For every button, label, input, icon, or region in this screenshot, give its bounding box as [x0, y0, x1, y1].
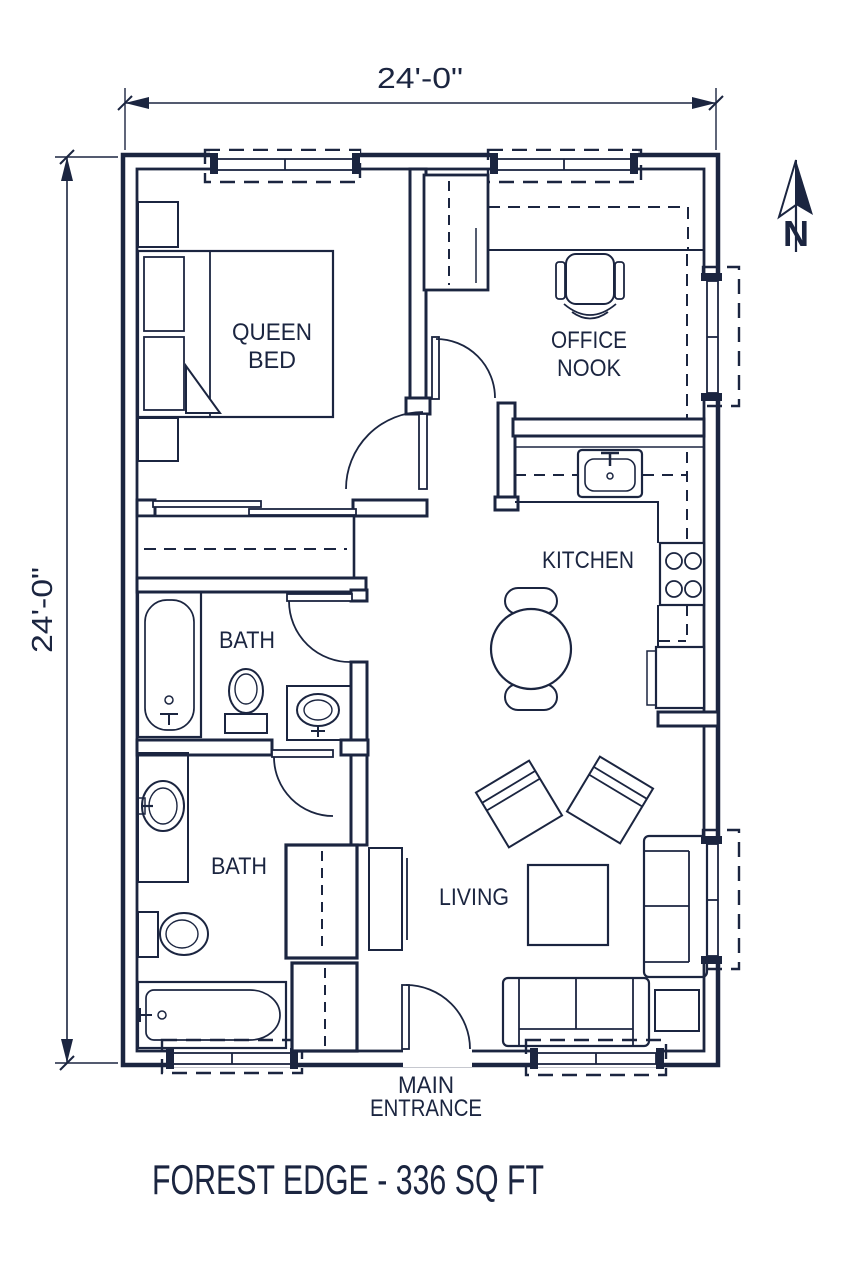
bedroom-door [346, 412, 427, 489]
media-console [369, 848, 407, 950]
loveseat-right [644, 836, 707, 977]
bathtub-middle [138, 592, 201, 737]
bath-lower-door [272, 750, 333, 816]
armchair-right [567, 757, 653, 844]
entry-closet-upper [286, 845, 357, 958]
kitchen-sink [578, 450, 642, 497]
dining-set [491, 588, 571, 710]
end-table [655, 990, 699, 1031]
dimension-top-label: 24'-0" [377, 63, 463, 95]
bedroom-closet-sliding-doors [153, 501, 356, 515]
bath-middle-door [287, 594, 352, 662]
room-label-living: LIVING [439, 884, 509, 911]
room-label-kitchen: KITCHEN [542, 547, 634, 574]
office-door [432, 337, 495, 399]
toilet-middle [225, 669, 267, 733]
room-label-entrance-line2: ENTRANCE [370, 1095, 482, 1122]
room-label-office-line2: NOOK [557, 355, 621, 382]
room-label-bedroom-line2: BED [248, 347, 296, 374]
main-entrance-door [402, 985, 470, 1049]
toilet-lower [138, 912, 208, 957]
room-label-bath-middle: BATH [219, 627, 275, 654]
plan-title: FOREST EDGE - 336 SQ FT [152, 1156, 544, 1203]
bathtub-lower [138, 982, 286, 1048]
stove [660, 543, 704, 605]
refrigerator [647, 647, 704, 708]
entry-closet-lower [292, 963, 357, 1051]
floor-plan-page: 24'-0" 24'-0" N QUEEN BED OFFICE NOOK KI… [0, 0, 848, 1264]
dimension-left: 24'-0" [27, 150, 118, 1070]
room-label-office-line1: OFFICE [551, 327, 627, 354]
room-label-bedroom-line1: QUEEN [232, 319, 312, 346]
armchair-left [476, 761, 562, 848]
dimension-top: 24'-0" [118, 63, 723, 150]
office-chair [556, 254, 624, 319]
floor-plan-drawing: 24'-0" 24'-0" N QUEEN BED OFFICE NOOK KI… [0, 0, 848, 1264]
vanity-lower [138, 753, 188, 882]
room-label-bath-lower: BATH [211, 853, 267, 880]
nightstand-top [138, 202, 178, 247]
dimension-left-label: 24'-0" [27, 567, 59, 653]
office-desk [488, 207, 703, 418]
sofa-bottom [503, 978, 649, 1046]
office-closet [424, 175, 488, 290]
vanity-middle [287, 686, 351, 740]
coffee-table [528, 865, 608, 945]
north-arrow-icon: N [779, 160, 813, 254]
north-label: N [783, 213, 809, 254]
nightstand-bottom [138, 418, 178, 461]
